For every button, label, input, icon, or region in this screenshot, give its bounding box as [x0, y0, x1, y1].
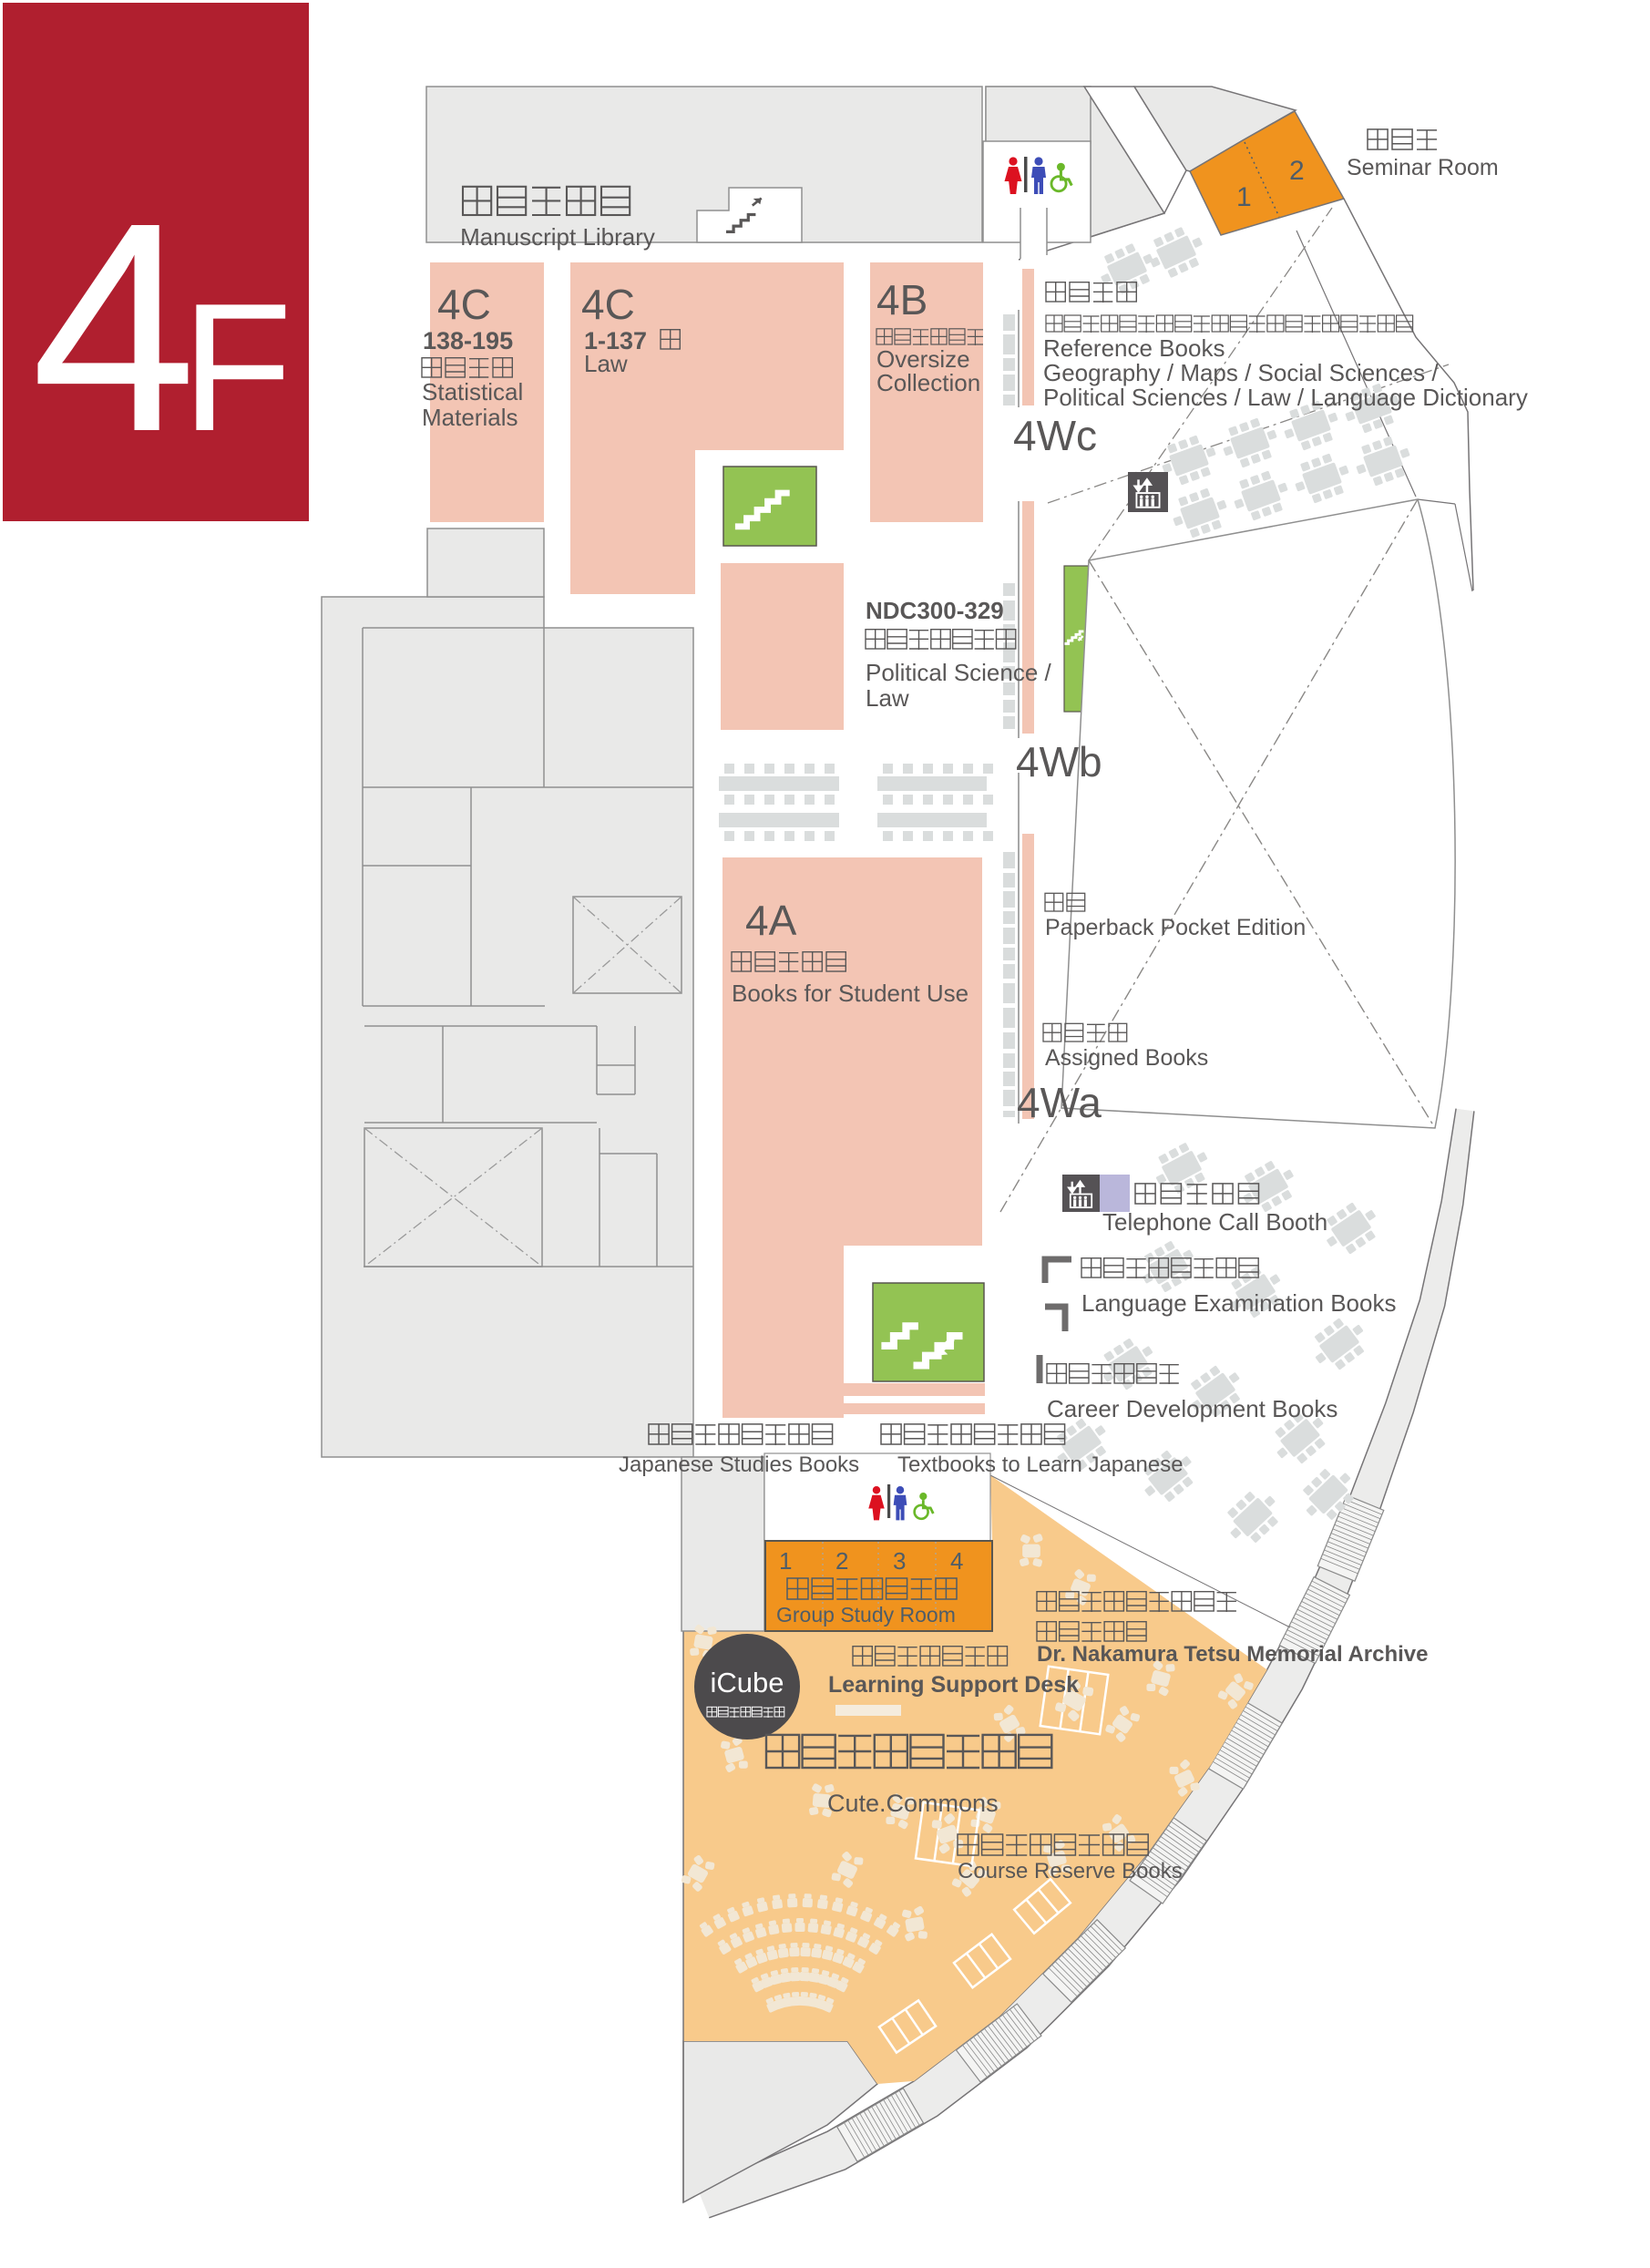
svg-text:4Wc: 4Wc	[1013, 412, 1097, 459]
svg-text:4: 4	[31, 161, 197, 494]
svg-text:Learning Support Desk: Learning Support Desk	[828, 1672, 1079, 1698]
svg-text:Geography / Maps / Social Scie: Geography / Maps / Social Sciences /	[1043, 359, 1439, 386]
svg-text:Materials: Materials	[422, 404, 518, 431]
svg-text:Collection: Collection	[876, 369, 980, 396]
svg-text:Political Sciences / Law / Lan: Political Sciences / Law / Language Dict…	[1043, 384, 1528, 411]
svg-text:Telephone Call Booth: Telephone Call Booth	[1102, 1208, 1327, 1236]
svg-text:2: 2	[835, 1547, 848, 1575]
svg-text:Manuscript Library: Manuscript Library	[460, 223, 655, 251]
svg-text:Reference Books: Reference Books	[1043, 334, 1225, 362]
svg-text:4Wa: 4Wa	[1017, 1079, 1102, 1126]
svg-text:138-195: 138-195	[423, 327, 513, 354]
svg-text:Group Study Room: Group Study Room	[776, 1603, 956, 1627]
svg-text:Law: Law	[584, 350, 628, 377]
svg-text:Course Reserve Books: Course Reserve Books	[958, 1859, 1183, 1883]
svg-text:1: 1	[779, 1547, 792, 1575]
svg-text:Assigned Books: Assigned Books	[1045, 1045, 1208, 1071]
svg-text:Statistical: Statistical	[422, 378, 523, 405]
svg-text:Seminar Room: Seminar Room	[1347, 155, 1499, 180]
svg-text:Japanese Studies Books: Japanese Studies Books	[619, 1452, 859, 1477]
svg-text:4B: 4B	[876, 276, 927, 323]
svg-text:Textbooks to Learn Japanese: Textbooks to Learn Japanese	[897, 1452, 1184, 1477]
svg-text:F: F	[181, 266, 292, 469]
svg-text:Career Development Books: Career Development Books	[1047, 1395, 1337, 1422]
svg-text:2: 2	[1289, 156, 1305, 186]
svg-text:4A: 4A	[745, 897, 797, 944]
svg-text:Political Science /: Political Science /	[866, 659, 1052, 686]
svg-text:NDC300-329: NDC300-329	[866, 597, 1004, 624]
svg-text:4Wb: 4Wb	[1016, 738, 1102, 785]
svg-text:iCube: iCube	[711, 1667, 784, 1698]
svg-text:3: 3	[893, 1547, 906, 1575]
svg-text:4C: 4C	[437, 281, 491, 328]
svg-text:Law: Law	[866, 684, 909, 712]
svg-text:Paperback Pocket Edition: Paperback Pocket Edition	[1045, 915, 1306, 940]
svg-text:Dr. Nakamura Tetsu Memorial Ar: Dr. Nakamura Tetsu Memorial Archive	[1037, 1642, 1429, 1667]
svg-text:Language Examination Books: Language Examination Books	[1081, 1289, 1396, 1317]
svg-text:Cute.Commons: Cute.Commons	[827, 1790, 999, 1817]
svg-text:4: 4	[950, 1547, 963, 1575]
svg-text:4C: 4C	[581, 281, 635, 328]
svg-text:1: 1	[1236, 182, 1252, 212]
svg-text:Books for Student Use: Books for Student Use	[732, 980, 968, 1007]
